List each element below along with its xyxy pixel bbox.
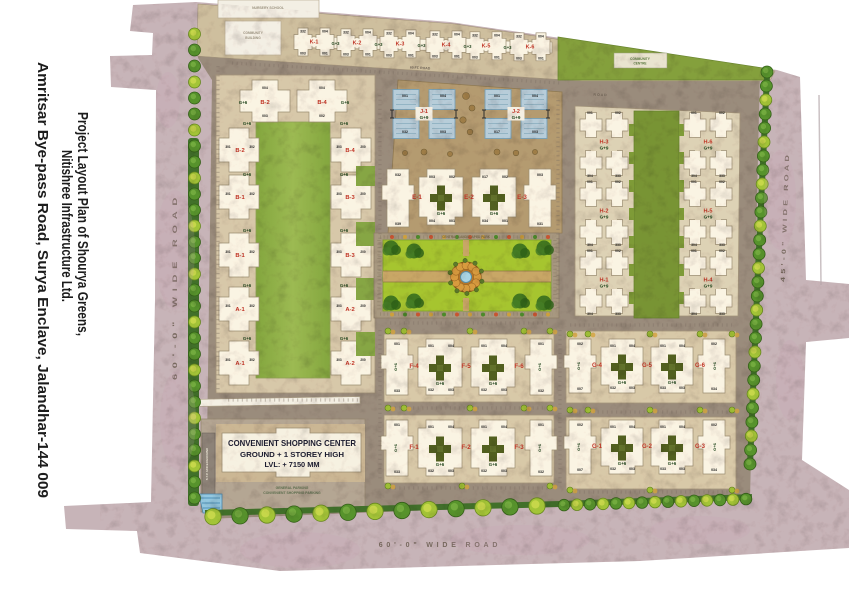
svg-text:Nitishree Infrastructure Ltd.: Nitishree Infrastructure Ltd. <box>58 150 74 302</box>
svg-text:Project Layout Plan of Shourya: Project Layout Plan of Shourya Greens, <box>74 112 90 336</box>
svg-text:Amritsar Bye-pass Road, Surya: Amritsar Bye-pass Road, Surya Enclave, J… <box>34 62 51 498</box>
